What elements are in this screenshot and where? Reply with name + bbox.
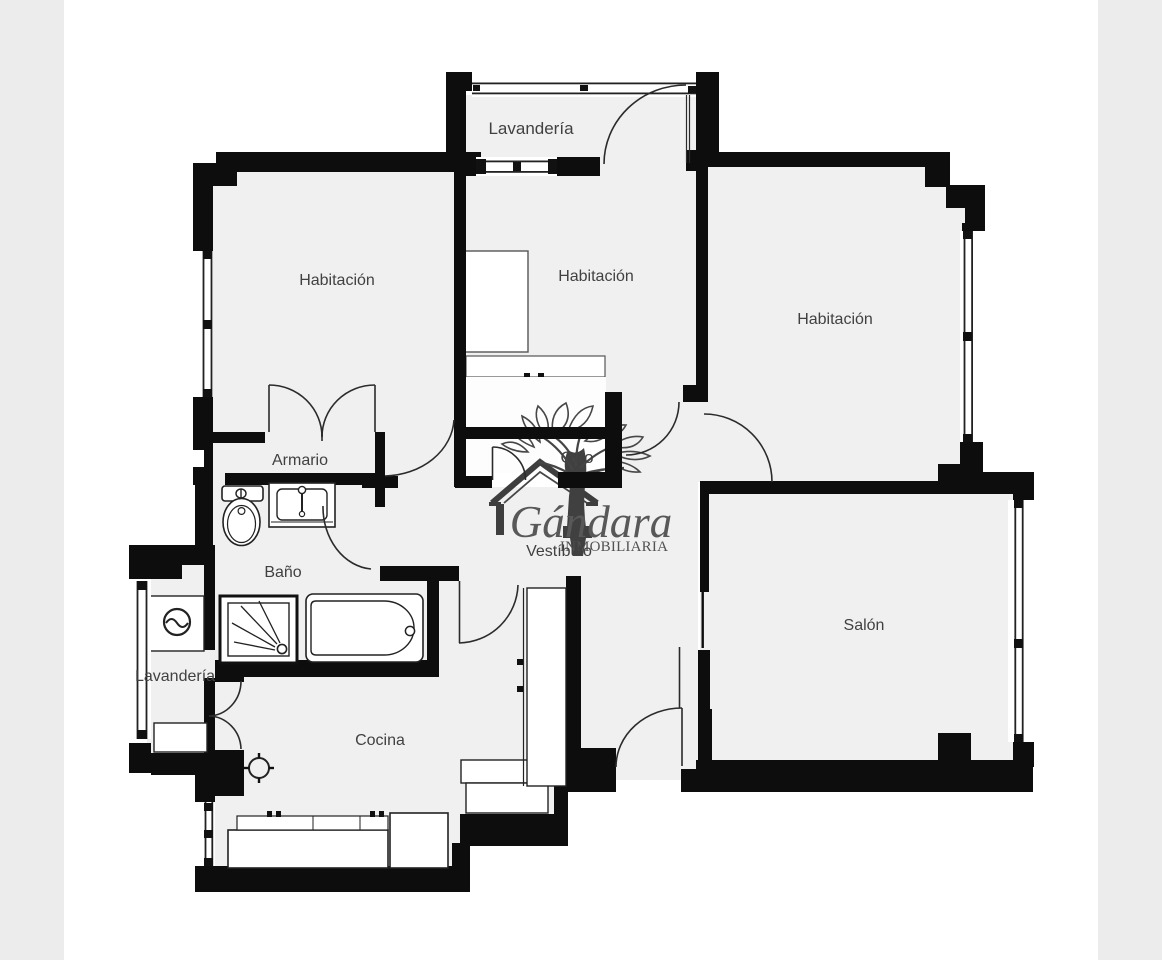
svg-text:Salón: Salón [844,617,885,634]
svg-text:Lavandería: Lavandería [135,668,215,685]
svg-text:Habitación: Habitación [558,268,634,285]
svg-text:Otro: Otro [560,448,593,467]
svg-text:Armario: Armario [272,452,328,469]
svg-text:Lavandería: Lavandería [488,119,574,138]
svg-text:Baño: Baño [264,564,301,581]
svg-text:Cocina: Cocina [355,732,405,749]
svg-text:Vestíbulo: Vestíbulo [526,543,592,560]
svg-text:Habitación: Habitación [797,311,873,328]
svg-text:Habitación: Habitación [299,272,375,289]
